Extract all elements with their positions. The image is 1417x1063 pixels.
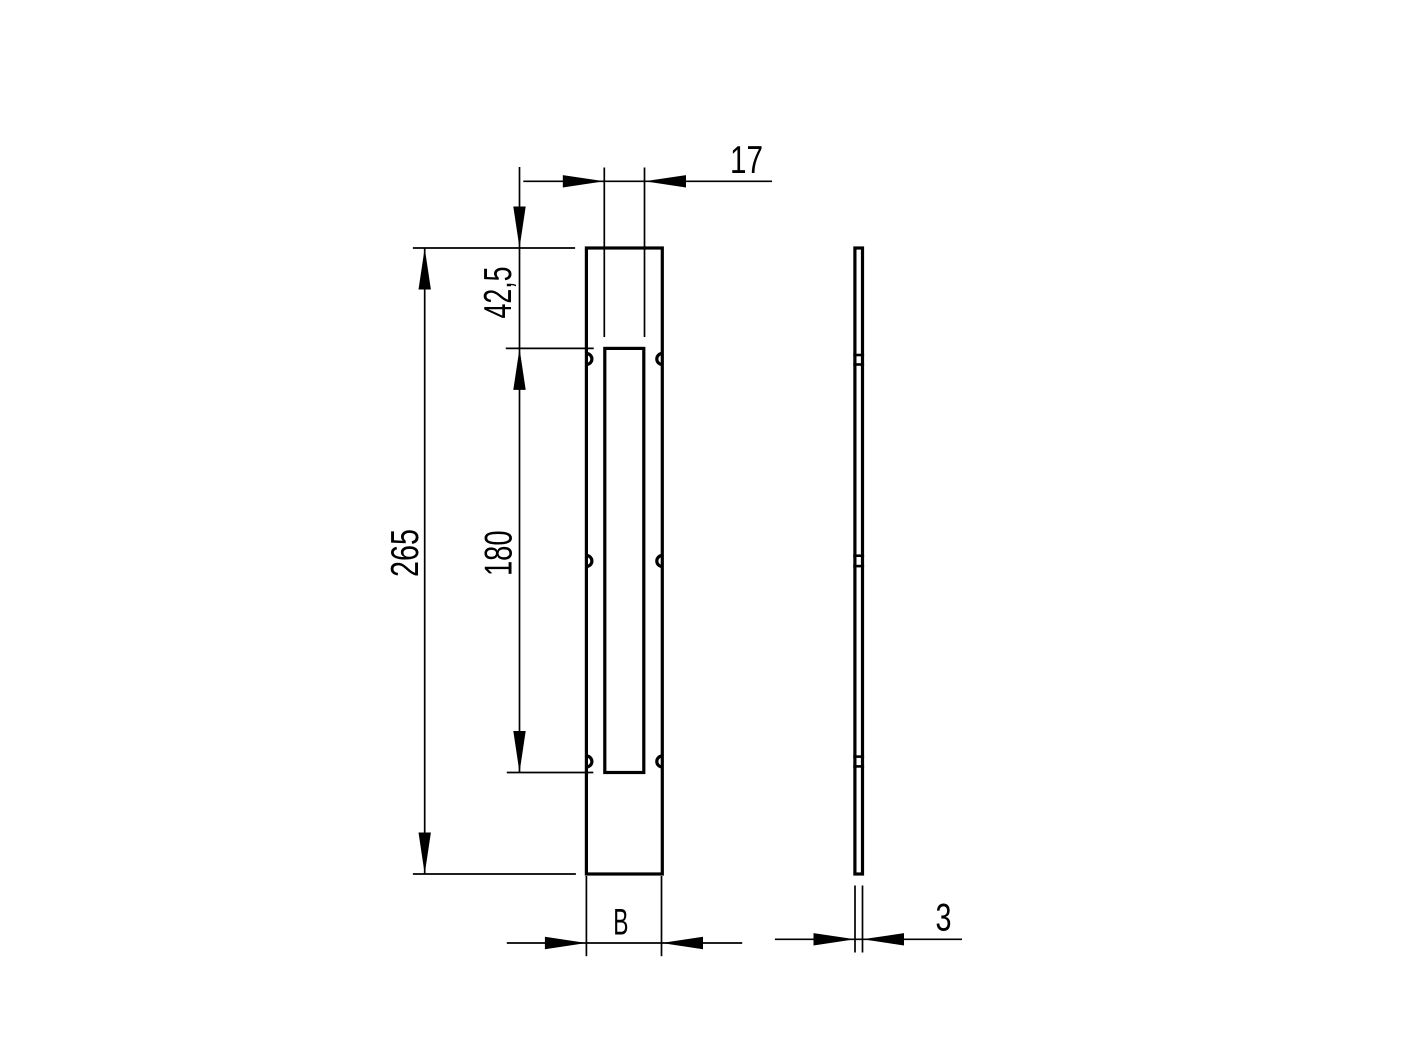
svg-text:265: 265 (384, 529, 427, 577)
svg-text:180: 180 (478, 531, 521, 577)
svg-text:B: B (613, 901, 628, 942)
svg-text:3: 3 (936, 897, 952, 940)
svg-text:42,5: 42,5 (477, 267, 520, 319)
svg-text:17: 17 (730, 139, 763, 182)
